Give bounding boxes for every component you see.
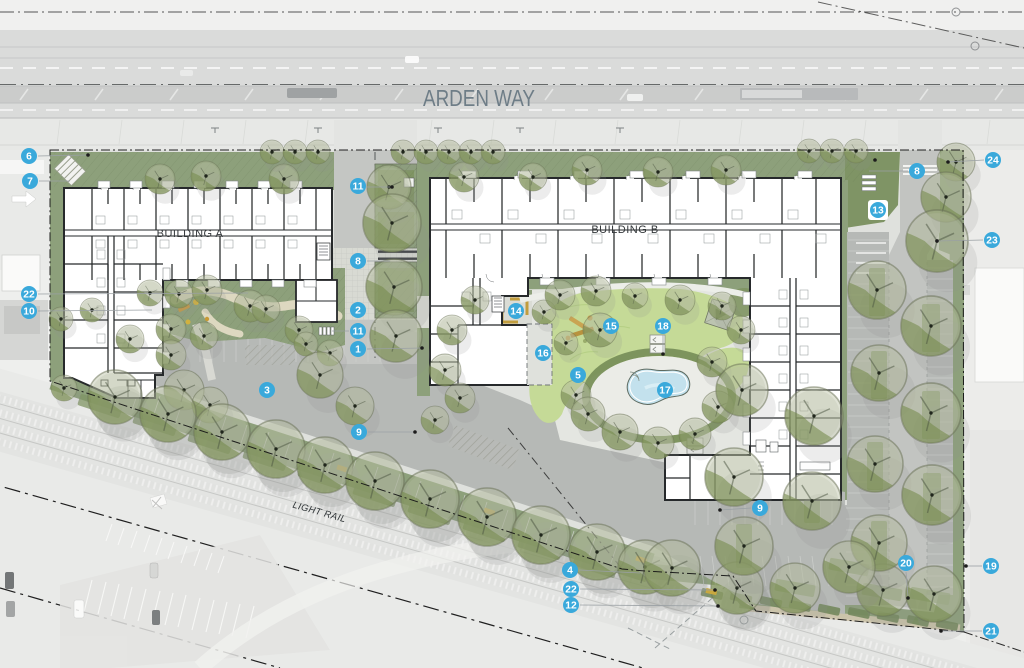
svg-text:14: 14: [510, 307, 522, 318]
svg-text:3: 3: [264, 386, 270, 397]
svg-text:8: 8: [355, 257, 361, 268]
svg-text:BUILDING B: BUILDING B: [591, 224, 658, 236]
svg-text:10: 10: [23, 307, 35, 318]
svg-text:8: 8: [914, 167, 920, 178]
svg-text:12: 12: [565, 601, 577, 612]
svg-text:16: 16: [537, 349, 549, 360]
svg-text:1: 1: [355, 345, 361, 356]
svg-text:6: 6: [26, 152, 32, 163]
svg-text:24: 24: [987, 156, 999, 167]
svg-text:BUILDING A: BUILDING A: [157, 228, 224, 240]
svg-text:19: 19: [985, 562, 997, 573]
svg-text:11: 11: [353, 182, 364, 193]
svg-text:11: 11: [353, 327, 364, 338]
svg-text:20: 20: [900, 559, 912, 570]
svg-text:ARDEN WAY: ARDEN WAY: [423, 85, 535, 111]
svg-text:4: 4: [567, 566, 573, 577]
svg-text:22: 22: [23, 290, 35, 301]
svg-text:2: 2: [355, 306, 361, 317]
svg-text:7: 7: [27, 177, 33, 188]
svg-text:9: 9: [757, 504, 763, 515]
svg-text:5: 5: [575, 371, 581, 382]
svg-text:9: 9: [356, 428, 362, 439]
svg-text:22: 22: [565, 585, 577, 596]
svg-text:23: 23: [986, 236, 998, 247]
svg-text:17: 17: [659, 386, 671, 397]
svg-text:18: 18: [657, 322, 669, 333]
svg-text:15: 15: [605, 322, 617, 333]
svg-text:13: 13: [872, 206, 884, 217]
svg-text:21: 21: [985, 627, 997, 638]
